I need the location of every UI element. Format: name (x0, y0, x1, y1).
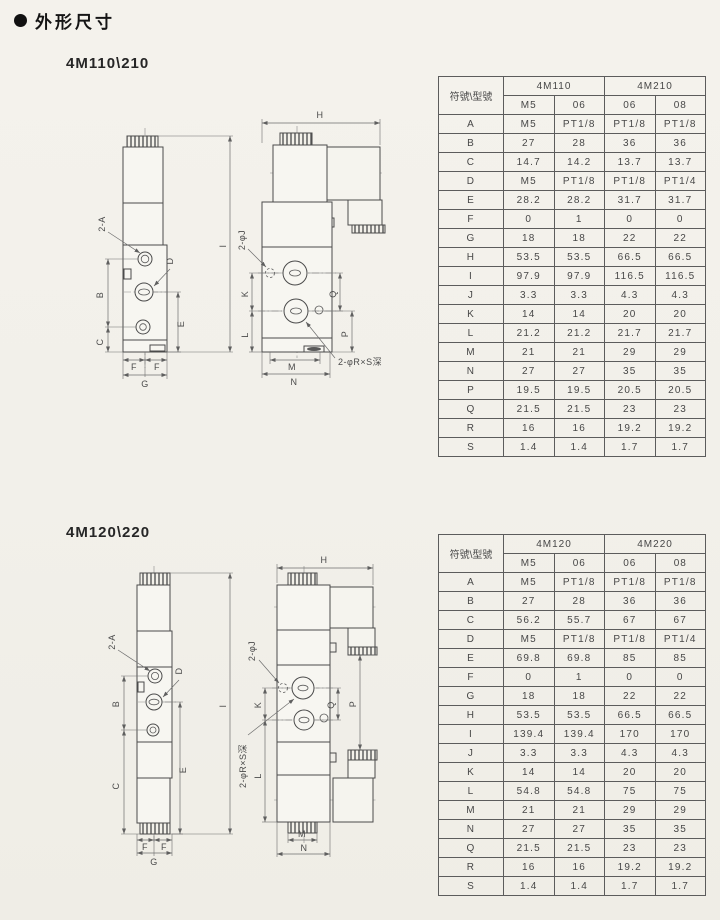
dim-value-cell: 22 (605, 229, 656, 248)
table-row: S1.41.41.71.7 (439, 877, 706, 896)
dim-value-cell: 21.5 (554, 400, 605, 419)
dim-label-m: M (298, 829, 306, 839)
dimension-table-4m110-210: 符號\型號4M1104M210M5060608AM5PT1/8PT1/8PT1/… (438, 76, 706, 457)
valve-lower-body (277, 742, 330, 775)
solenoid-body (273, 145, 327, 202)
dim-value-cell: 0 (504, 210, 555, 229)
port-size-header: 06 (554, 96, 605, 115)
valve-upper-body (277, 630, 330, 665)
dim-symbol-cell: J (439, 286, 504, 305)
dim-value-cell: 69.8 (504, 649, 555, 668)
dim-value-cell: 1 (554, 210, 605, 229)
dim-label-b: B (95, 292, 105, 299)
dim-value-cell: 13.7 (605, 153, 656, 172)
dim-value-cell: 28.2 (504, 191, 555, 210)
leader-2j (259, 660, 279, 683)
dim-value-cell: 27 (504, 820, 555, 839)
connector-knurl-bottom (348, 750, 377, 760)
dim-value-cell: 23 (655, 839, 706, 858)
dim-symbol-cell: P (439, 381, 504, 400)
dim-value-cell: 35 (655, 362, 706, 381)
dim-label-p: P (340, 331, 350, 338)
dim-value-cell: PT1/8 (605, 172, 656, 191)
dim-value-cell: 13.7 (655, 153, 706, 172)
dim-value-cell: 14 (554, 763, 605, 782)
dim-symbol-cell: E (439, 649, 504, 668)
dim-symbol-cell: B (439, 592, 504, 611)
port-size-header: M5 (504, 96, 555, 115)
model-group-header: 4M110 (504, 77, 605, 96)
table-row: C56.255.76767 (439, 611, 706, 630)
dimension-table-4m120-220: 符號\型號4M1204M220M5060608AM5PT1/8PT1/8PT1/… (438, 534, 706, 896)
coil-housing-top (330, 587, 373, 628)
dim-value-cell: 75 (605, 782, 656, 801)
dim-symbol-cell: F (439, 210, 504, 229)
dim-value-cell: 35 (655, 820, 706, 839)
dim-symbol-cell: L (439, 782, 504, 801)
dim-symbol-cell: K (439, 763, 504, 782)
dim-value-cell: 3.3 (504, 744, 555, 763)
dim-value-cell: 36 (605, 592, 656, 611)
dim-value-cell: 21.2 (554, 324, 605, 343)
dim-value-cell: 28.2 (554, 191, 605, 210)
dim-value-cell: 21.5 (504, 400, 555, 419)
port-size-header: 08 (655, 96, 706, 115)
coil-housing-bottom (333, 778, 373, 822)
dim-symbol-cell: S (439, 877, 504, 896)
model-group-header: 4M210 (605, 77, 706, 96)
table-row: DM5PT1/8PT1/8PT1/4 (439, 172, 706, 191)
dim-value-cell: 67 (655, 611, 706, 630)
dim-label-2j: 2-φJ (247, 641, 257, 661)
table-row: K14142020 (439, 763, 706, 782)
dim-value-cell: M5 (504, 115, 555, 134)
dim-value-cell: 97.9 (504, 267, 555, 286)
dim-value-cell: 4.3 (605, 286, 656, 305)
dim-value-cell: 14 (554, 305, 605, 324)
model-group-header: 4M220 (605, 535, 706, 554)
dim-value-cell: 66.5 (655, 706, 706, 725)
dim-symbol-cell: G (439, 229, 504, 248)
dim-label-h: H (317, 110, 324, 120)
section-title-4m120-220: 4M120\220 (66, 524, 150, 541)
dim-value-cell: 18 (504, 229, 555, 248)
coil-connector-top (348, 628, 375, 647)
dim-symbol-cell: M (439, 801, 504, 820)
table-corner-label: 符號\型號 (439, 535, 504, 573)
port-circle-1 (283, 261, 307, 285)
solenoid-body-top (137, 585, 170, 631)
dim-value-cell: 27 (504, 134, 555, 153)
solenoid-cap-knurl-bottom (140, 823, 170, 834)
dim-value-cell: 54.8 (554, 782, 605, 801)
dim-symbol-cell: A (439, 573, 504, 592)
coil-connector-bottom (348, 760, 375, 778)
dim-symbol-cell: H (439, 706, 504, 725)
table-row: H53.553.566.566.5 (439, 248, 706, 267)
dim-value-cell: 1.7 (605, 438, 656, 457)
catalog-page: { "page": { "title": "外形尺寸" }, "sections… (0, 0, 720, 920)
dim-value-cell: 19.2 (655, 858, 706, 877)
dim-value-cell: 0 (605, 668, 656, 687)
dim-value-cell: 35 (605, 820, 656, 839)
table-row: J3.33.34.34.3 (439, 286, 706, 305)
table-row: J3.33.34.34.3 (439, 744, 706, 763)
port-hole-bottom (136, 320, 150, 334)
dim-value-cell: 19.2 (605, 419, 656, 438)
port-hole-top (138, 252, 152, 266)
dimension-table: 符號\型號4M1104M210M5060608AM5PT1/8PT1/8PT1/… (438, 76, 706, 457)
dim-value-cell: PT1/8 (554, 115, 605, 134)
dim-label-k: K (240, 291, 250, 298)
dim-value-cell: 20.5 (655, 381, 706, 400)
dim-label-n: N (291, 377, 298, 387)
dim-value-cell: 22 (605, 687, 656, 706)
dim-label-l: L (253, 773, 263, 779)
dim-value-cell: PT1/8 (655, 573, 706, 592)
dim-label-n: N (301, 843, 308, 853)
dim-value-cell: M5 (504, 172, 555, 191)
dim-label-c: C (95, 339, 105, 346)
dim-label-k: K (253, 702, 263, 709)
dim-value-cell: 1.4 (504, 877, 555, 896)
port-size-header: 06 (605, 554, 656, 573)
dim-symbol-cell: J (439, 744, 504, 763)
dim-symbol-cell: R (439, 419, 504, 438)
dim-value-cell: 14 (504, 763, 555, 782)
dim-value-cell: 28 (554, 134, 605, 153)
dim-label-q: Q (326, 701, 336, 709)
adapter-section (123, 203, 163, 245)
dim-symbol-cell: S (439, 438, 504, 457)
dim-symbol-cell: K (439, 305, 504, 324)
dim-value-cell: 36 (655, 592, 706, 611)
dim-label-g: G (141, 379, 149, 389)
table-row: DM5PT1/8PT1/8PT1/4 (439, 630, 706, 649)
dim-value-cell: 4.3 (655, 744, 706, 763)
dim-value-cell: 20 (605, 763, 656, 782)
table-row: M21212929 (439, 801, 706, 820)
dim-value-cell: 53.5 (554, 706, 605, 725)
dim-value-cell: 29 (655, 801, 706, 820)
dim-value-cell: 27 (504, 362, 555, 381)
dim-label-b: B (111, 701, 121, 708)
dim-symbol-cell: I (439, 725, 504, 744)
valve-port-body (262, 247, 332, 338)
valve-base (123, 340, 167, 352)
table-row: C14.714.213.713.7 (439, 153, 706, 172)
dim-value-cell: 67 (605, 611, 656, 630)
solenoid-cap-knurl (280, 133, 312, 145)
dim-value-cell: 20 (655, 763, 706, 782)
dim-value-cell: 139.4 (554, 725, 605, 744)
port-size-header: 06 (605, 96, 656, 115)
dim-value-cell: 18 (554, 687, 605, 706)
section-title-4m110-210: 4M110\210 (66, 55, 149, 72)
dim-label-f-left: F (131, 362, 137, 372)
dim-symbol-cell: M (439, 343, 504, 362)
dim-value-cell: 31.7 (655, 191, 706, 210)
table-row: B27283636 (439, 592, 706, 611)
dim-value-cell: 22 (655, 229, 706, 248)
dim-value-cell: 55.7 (554, 611, 605, 630)
dim-symbol-cell: D (439, 172, 504, 191)
solenoid-body (123, 147, 163, 203)
dim-value-cell: 139.4 (504, 725, 555, 744)
dim-label-r-depth: 2-φR×S深 (238, 744, 248, 788)
front-view-drawing-4m120: 2-A D B C E F F G I (58, 556, 238, 886)
dim-symbol-cell: Q (439, 400, 504, 419)
dim-value-cell: PT1/8 (554, 573, 605, 592)
dim-value-cell: 19.2 (655, 419, 706, 438)
table-corner-label: 符號\型號 (439, 77, 504, 115)
dim-value-cell: 27 (554, 362, 605, 381)
valve-upper-body (262, 202, 332, 247)
dim-value-cell: 16 (554, 419, 605, 438)
dim-value-cell: PT1/8 (554, 630, 605, 649)
dim-value-cell: 21 (504, 801, 555, 820)
dim-value-cell: 19.2 (605, 858, 656, 877)
dim-value-cell: 53.5 (504, 706, 555, 725)
table-row: Q21.521.52323 (439, 400, 706, 419)
dim-value-cell: PT1/8 (655, 115, 706, 134)
dim-value-cell: 85 (605, 649, 656, 668)
dim-label-f-right: F (154, 362, 160, 372)
dim-value-cell: 23 (605, 839, 656, 858)
adapter-section-bottom (137, 742, 172, 778)
dim-value-cell: 85 (655, 649, 706, 668)
dim-value-cell: 28 (554, 592, 605, 611)
port-circle-2 (294, 710, 314, 730)
front-view-drawing-4m110: 2-A D B C E F F G I (58, 96, 238, 396)
dim-value-cell: 53.5 (504, 248, 555, 267)
dim-value-cell: 14 (504, 305, 555, 324)
dim-value-cell: 29 (655, 343, 706, 362)
table-row: I139.4139.4170170 (439, 725, 706, 744)
dim-value-cell: M5 (504, 573, 555, 592)
dim-value-cell: 18 (554, 229, 605, 248)
table-row: H53.553.566.566.5 (439, 706, 706, 725)
dim-value-cell: 97.9 (554, 267, 605, 286)
dim-symbol-cell: R (439, 858, 504, 877)
dim-value-cell: 0 (655, 668, 706, 687)
dim-value-cell: 20.5 (605, 381, 656, 400)
dim-value-cell: 21 (504, 343, 555, 362)
dim-symbol-cell: E (439, 191, 504, 210)
dim-value-cell: 36 (655, 134, 706, 153)
body-tab-top (330, 643, 336, 652)
dim-value-cell: 3.3 (504, 286, 555, 305)
dim-value-cell: 16 (504, 858, 555, 877)
dim-value-cell: 16 (504, 419, 555, 438)
dim-value-cell: 1.7 (655, 877, 706, 896)
dim-value-cell: 53.5 (554, 248, 605, 267)
port-size-header: 08 (655, 554, 706, 573)
dim-label-i: I (218, 704, 228, 707)
dim-symbol-cell: C (439, 153, 504, 172)
dim-value-cell: 116.5 (605, 267, 656, 286)
bullet-icon (14, 14, 27, 27)
dim-value-cell: 19.5 (504, 381, 555, 400)
dim-symbol-cell: I (439, 267, 504, 286)
dim-label-2j: 2-φJ (237, 230, 247, 250)
dim-value-cell: 3.3 (554, 744, 605, 763)
dim-value-cell: 27 (504, 592, 555, 611)
port-size-header: 06 (554, 554, 605, 573)
dim-value-cell: 69.8 (554, 649, 605, 668)
dim-value-cell: 66.5 (605, 248, 656, 267)
dim-label-p: P (348, 701, 358, 708)
dim-label-g: G (150, 857, 158, 867)
table-row: K14142020 (439, 305, 706, 324)
port-circle-2 (284, 299, 308, 323)
dim-value-cell: 3.3 (554, 286, 605, 305)
dim-symbol-cell: L (439, 324, 504, 343)
dim-value-cell: 1.7 (605, 877, 656, 896)
dim-value-cell: PT1/4 (655, 172, 706, 191)
port-hole-middle (146, 694, 162, 710)
coil-housing (327, 147, 380, 200)
cap-knurl-top (288, 573, 317, 585)
dim-value-cell: 4.3 (655, 286, 706, 305)
dim-label-c: C (111, 783, 121, 790)
port-hole-middle (135, 283, 153, 301)
dim-label-f-left: F (142, 842, 148, 852)
dim-label-e: E (176, 321, 186, 328)
dim-symbol-cell: N (439, 362, 504, 381)
dim-value-cell: PT1/8 (605, 115, 656, 134)
solenoid-block-bottom (277, 775, 330, 822)
dim-value-cell: 36 (605, 134, 656, 153)
dim-value-cell: PT1/8 (605, 630, 656, 649)
dim-value-cell: 16 (554, 858, 605, 877)
table-row: N27273535 (439, 362, 706, 381)
dim-value-cell: 18 (504, 687, 555, 706)
dim-value-cell: 29 (605, 343, 656, 362)
table-row: R161619.219.2 (439, 419, 706, 438)
dim-value-cell: 23 (605, 400, 656, 419)
dim-label-i: I (218, 244, 228, 247)
dim-symbol-cell: G (439, 687, 504, 706)
table-row: L54.854.87575 (439, 782, 706, 801)
dim-symbol-cell: A (439, 115, 504, 134)
dim-value-cell: 19.5 (554, 381, 605, 400)
dimension-table: 符號\型號4M1204M220M5060608AM5PT1/8PT1/8PT1/… (438, 534, 706, 896)
dim-symbol-cell: C (439, 611, 504, 630)
table-row: F0100 (439, 668, 706, 687)
table-row: F0100 (439, 210, 706, 229)
dim-symbol-cell: F (439, 668, 504, 687)
table-row: L21.221.221.721.7 (439, 324, 706, 343)
port-circle-1 (292, 677, 314, 699)
dim-value-cell: 21.5 (554, 839, 605, 858)
port-hole-top (148, 669, 162, 683)
dim-value-cell: 1.7 (655, 438, 706, 457)
dim-value-cell: 0 (605, 210, 656, 229)
body-tab-bottom (330, 753, 336, 762)
dim-value-cell: 22 (655, 687, 706, 706)
connector-knurl (352, 225, 385, 233)
dim-label-h: H (321, 555, 328, 565)
solenoid-body-bottom (137, 778, 170, 823)
port-size-header: M5 (504, 554, 555, 573)
dim-value-cell: 21.5 (504, 839, 555, 858)
table-row: I97.997.9116.5116.5 (439, 267, 706, 286)
dim-label-m: M (288, 362, 296, 372)
connector-knurl-top (348, 647, 377, 655)
dim-value-cell: 54.8 (504, 782, 555, 801)
dim-label-d: D (165, 258, 175, 265)
dim-value-cell: 21 (554, 343, 605, 362)
dim-symbol-cell: D (439, 630, 504, 649)
dim-value-cell: 21.2 (504, 324, 555, 343)
dim-value-cell: 20 (605, 305, 656, 324)
table-row: N27273535 (439, 820, 706, 839)
table-row: E69.869.88585 (439, 649, 706, 668)
dim-symbol-cell: B (439, 134, 504, 153)
dim-value-cell: 20 (655, 305, 706, 324)
dim-value-cell: 56.2 (504, 611, 555, 630)
dim-symbol-cell: N (439, 820, 504, 839)
dim-value-cell: 1.4 (504, 438, 555, 457)
table-row: G18182222 (439, 687, 706, 706)
side-view-drawing-4m120: H 2-φJ 2-φR×S深 K L Q P M N (234, 552, 440, 886)
dim-value-cell: 21 (554, 801, 605, 820)
manual-override (307, 347, 321, 351)
dim-label-e: E (178, 767, 188, 774)
dim-value-cell: 1 (554, 668, 605, 687)
table-row: P19.519.520.520.5 (439, 381, 706, 400)
dim-value-cell: PT1/8 (605, 573, 656, 592)
solenoid-cap-knurl (127, 136, 158, 147)
dim-label-2a: 2-A (107, 634, 117, 650)
dim-value-cell: 116.5 (655, 267, 706, 286)
table-row: E28.228.231.731.7 (439, 191, 706, 210)
dim-value-cell: 1.4 (554, 877, 605, 896)
dim-symbol-cell: Q (439, 839, 504, 858)
adapter-section-top (137, 631, 172, 667)
dim-label-d: D (174, 668, 184, 675)
dim-value-cell: 66.5 (655, 248, 706, 267)
dim-value-cell: 21.7 (605, 324, 656, 343)
table-row: R161619.219.2 (439, 858, 706, 877)
dim-value-cell: 29 (605, 801, 656, 820)
table-row: G18182222 (439, 229, 706, 248)
table-row: S1.41.41.71.7 (439, 438, 706, 457)
dim-value-cell: 14.2 (554, 153, 605, 172)
dim-value-cell: PT1/4 (655, 630, 706, 649)
page-header: 外形尺寸 (14, 8, 115, 33)
coil-connector (348, 200, 382, 225)
dim-label-f-right: F (161, 842, 167, 852)
dim-label-q: Q (328, 290, 338, 298)
dim-value-cell: 170 (655, 725, 706, 744)
dim-label-2a: 2-A (97, 216, 107, 232)
table-row: B27283636 (439, 134, 706, 153)
table-row: Q21.521.52323 (439, 839, 706, 858)
dim-value-cell: 4.3 (605, 744, 656, 763)
dim-value-cell: 0 (504, 668, 555, 687)
table-row: AM5PT1/8PT1/8PT1/8 (439, 115, 706, 134)
table-row: AM5PT1/8PT1/8PT1/8 (439, 573, 706, 592)
valve-base (262, 338, 332, 352)
side-view-drawing-4m110: H 2-φJ K L Q P M N 2-φR×S深 (234, 96, 440, 396)
dim-value-cell: M5 (504, 630, 555, 649)
solenoid-block-top (277, 585, 330, 630)
dim-value-cell: 35 (605, 362, 656, 381)
dim-value-cell: 21.7 (655, 324, 706, 343)
dim-value-cell: 75 (655, 782, 706, 801)
